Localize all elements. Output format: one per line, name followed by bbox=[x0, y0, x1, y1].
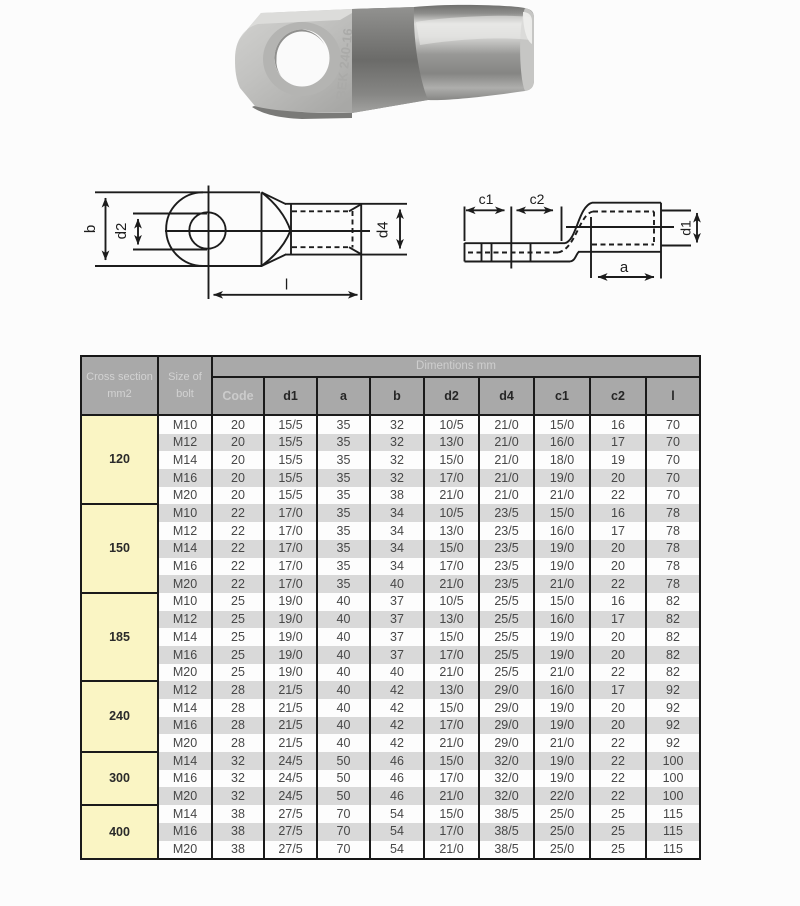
svg-text:c2: c2 bbox=[530, 191, 545, 207]
svg-text:a: a bbox=[620, 259, 629, 276]
svg-text:d1: d1 bbox=[678, 220, 694, 236]
svg-text:c1: c1 bbox=[479, 191, 494, 207]
